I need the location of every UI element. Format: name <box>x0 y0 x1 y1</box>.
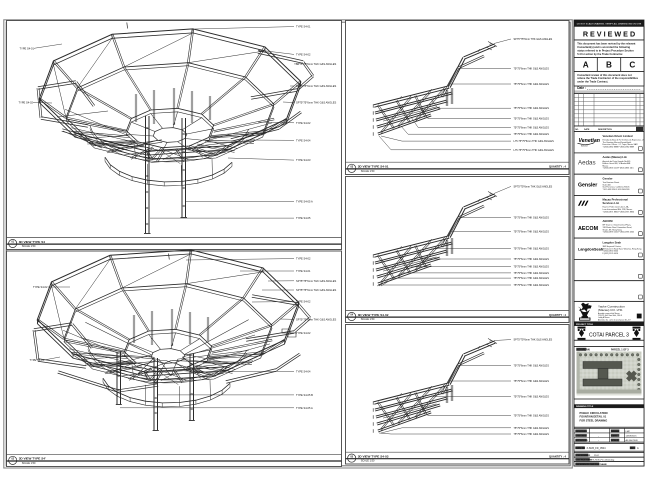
svg-text:Alameda. dra. carlos d assumpc: Alameda. dra. carlos d assumpcao 411-417 <box>598 318 631 321</box>
svg-text:75*75*6mm THK G&S ANGLES: 75*75*6mm THK G&S ANGLES <box>514 266 550 269</box>
svg-text:This document has been revised: This document has been revised by the re… <box>577 42 635 46</box>
svg-text:(Macau) CO. LTD.: (Macau) CO. LTD. <box>598 308 623 312</box>
svg-text:3-SUB_FD_0504.dwg: 3-SUB_FD_0504.dwg <box>593 460 615 462</box>
svg-text:Gensler: Gensler <box>578 183 597 189</box>
svg-text:DATE: DATE <box>611 434 617 437</box>
svg-text:75*75*6mm THK G&S ANGLES: 75*75*6mm THK G&S ANGLES <box>514 396 550 399</box>
svg-text:75*75*6mm THK G&S ANGLES: 75*75*6mm THK G&S ANGLES <box>514 230 550 233</box>
svg-text:SP75*75*6mm THK G&S ANGLES: SP75*75*6mm THK G&S ANGLES <box>296 317 336 321</box>
svg-text:B: B <box>606 61 612 70</box>
svg-text:3D VIEW TYPE S4-01: 3D VIEW TYPE S4-01 <box>358 165 389 169</box>
svg-text:A: A <box>583 61 589 70</box>
svg-text:3D VIEW TYPE S4-03: 3D VIEW TYPE S4-03 <box>358 454 389 458</box>
svg-text:75*75*6mm THK G&S ANGLES: 75*75*6mm THK G&S ANGLES <box>514 118 550 121</box>
svg-text:SP75*75*6mm THK G&S ANGLES: SP75*75*6mm THK G&S ANGLES <box>296 279 336 283</box>
svg-text:SCALE 1:50: SCALE 1:50 <box>22 462 36 465</box>
svg-text:TYPE S4-01: TYPE S4-01 <box>296 25 311 29</box>
svg-text:SP75*75*6mm THK G&S ANGLES: SP75*75*6mm THK G&S ANGLES <box>296 288 336 292</box>
svg-text:75*75*6mm THK G&S ANGLES: 75*75*6mm THK G&S ANGLES <box>514 284 550 287</box>
svg-text:TYPE S4-05 B: TYPE S4-05 B <box>296 393 313 397</box>
svg-text:Venetian Orient Limited: Venetian Orient Limited <box>603 134 633 138</box>
svg-text:Consultant review of this docu: Consultant review of this document does … <box>577 73 632 77</box>
svg-text:TYPE S4-05 A: TYPE S4-05 A <box>296 406 313 410</box>
svg-text:LangdonSeah: LangdonSeah <box>578 248 604 252</box>
svg-text:PUBLIC CIRCULATION: PUBLIC CIRCULATION <box>580 411 608 415</box>
svg-text:REFERENCE CAD FILE NAME: REFERENCE CAD FILE NAME <box>576 463 608 466</box>
svg-text:Services Ltd.: Services Ltd. <box>603 201 620 205</box>
svg-text:SCALE 1:50: SCALE 1:50 <box>22 245 36 248</box>
svg-text:2102: 2102 <box>594 455 600 457</box>
svg-text:NO.: NO. <box>575 129 579 131</box>
svg-text:DO NOT SCALE DRAWING. VERIFY A: DO NOT SCALE DRAWING. VERIFY ALL DIMENSI… <box>577 23 642 26</box>
svg-text:Langdon Seah: Langdon Seah <box>603 240 622 244</box>
svg-text:COTAI PARCEL 3: COTAI PARCEL 3 <box>589 332 629 338</box>
svg-text:TYPE S4-01: TYPE S4-01 <box>20 46 35 50</box>
svg-text:TYPE S4-02: TYPE S4-02 <box>296 53 311 57</box>
svg-text:T (853) 2871 8831 F (853) 287: T (853) 2871 8831 F (853) 2871 8830 <box>603 211 635 213</box>
svg-text:R E V I E W E D: R E V I E W E D <box>583 30 635 39</box>
svg-text:TYPE S4-01: TYPE S4-01 <box>30 358 45 362</box>
svg-text:3D VIEW TYPE S4-02: 3D VIEW TYPE S4-02 <box>358 313 389 317</box>
svg-text:Date :: Date : <box>577 86 586 90</box>
svg-text:3D VIEW TYPE S4: 3D VIEW TYPE S4 <box>19 240 46 244</box>
svg-text:T 415.433.3700 F 415.836.4599: T 415.433.3700 F 415.836.4599 <box>603 189 630 191</box>
svg-text:TYPE S4-02: TYPE S4-02 <box>296 121 311 125</box>
svg-text:FOR STEEL DRAWING: FOR STEEL DRAWING <box>580 418 608 422</box>
svg-text:TYPE S4-05 A: TYPE S4-05 A <box>296 200 313 204</box>
svg-text:QUANTITY : 4: QUANTITY : 4 <box>549 454 567 458</box>
svg-text:QUANTITY : 4: QUANTITY : 4 <box>549 313 567 317</box>
svg-text:DWG NO: DWG NO <box>576 448 586 450</box>
svg-text:SP75*75*6mm THK G&S ANGLES: SP75*75*6mm THK G&S ANGLES <box>514 38 553 41</box>
svg-text:14/08/2015: 14/08/2015 <box>626 435 638 437</box>
svg-text:75*75*6mm THK G&S ANGLES: 75*75*6mm THK G&S ANGLES <box>514 258 550 261</box>
svg-text:SCALE 1:50: SCALE 1:50 <box>361 170 375 173</box>
svg-text:QUANTITY : 4: QUANTITY : 4 <box>549 165 567 169</box>
svg-text:AECOM: AECOM <box>578 226 599 232</box>
svg-text:under the Trade Contract.: under the Trade Contract. <box>577 80 608 84</box>
svg-text:Gensler: Gensler <box>603 176 613 180</box>
svg-text:3D VIEW TYPE S4': 3D VIEW TYPE S4' <box>19 457 46 461</box>
svg-text:75*75*6mm THK G&S ANGLES: 75*75*6mm THK G&S ANGLES <box>514 126 550 129</box>
svg-text:PARCEL 1 OF 3: PARCEL 1 OF 3 <box>611 349 629 352</box>
svg-text:TYPE S4-02: TYPE S4-02 <box>296 331 311 335</box>
svg-text:SP75*75*6mm THK G&S ANGLES: SP75*75*6mm THK G&S ANGLES <box>514 185 553 188</box>
svg-text:75*75*6mm THK G&S ANGLES: 75*75*6mm THK G&S ANGLES <box>514 67 550 70</box>
svg-text:SP75*75*6mm THK G&S ANGLES: SP75*75*6mm THK G&S ANGLES <box>296 62 336 66</box>
svg-text:Consultant(s) and is accorded: Consultant(s) and is accorded the follow… <box>577 45 630 49</box>
svg-text:L75 75*75*6mm THK G&S ANGLES: L75 75*75*6mm THK G&S ANGLES <box>514 149 555 152</box>
svg-text:L75 75*75*6mm THK G&S ANGLES: L75 75*75*6mm THK G&S ANGLES <box>514 140 555 143</box>
svg-text:75*75*6mm THK G&S ANGLES: 75*75*6mm THK G&S ANGLES <box>514 272 550 275</box>
svg-text:75*75*6mm THK G&S ANGLES: 75*75*6mm THK G&S ANGLES <box>514 107 550 110</box>
svg-text:TYPE S4-02: TYPE S4-02 <box>296 300 311 304</box>
svg-text:FOUNTAIN DETAIL 01: FOUNTAIN DETAIL 01 <box>580 415 607 419</box>
svg-text:JOB NUMBER: JOB NUMBER <box>576 455 591 457</box>
svg-text:75*75*6mm THK G&S ANGLES: 75*75*6mm THK G&S ANGLES <box>514 415 550 418</box>
svg-text:AECOM: AECOM <box>603 219 614 223</box>
svg-text:DESIGNED: DESIGNED <box>576 431 588 433</box>
svg-text:T (852) 2893 1551 F (852) 289: T (852) 2893 1551 F (852) 2891 0305 <box>603 232 635 234</box>
svg-text:CHECKED: CHECKED <box>576 435 587 437</box>
svg-text:DESCRIPTION: DESCRIPTION <box>598 129 612 131</box>
svg-text:TYPE S4-05: TYPE S4-05 <box>296 216 311 220</box>
svg-text:TYPE S4-01: TYPE S4-01 <box>296 269 311 273</box>
svg-text:75*75*6mm THK G&S ANGLES: 75*75*6mm THK G&S ANGLES <box>514 380 550 383</box>
svg-text:5.4 for action by the Trade Co: 5.4 for action by the Trade Contractor. <box>577 52 623 56</box>
svg-text:TYPE S4-02: TYPE S4-02 <box>296 257 311 261</box>
svg-text:75*75*6mm THK G&S ANGLES: 75*75*6mm THK G&S ANGLES <box>514 248 550 251</box>
svg-text:F (852) 2576 0416: F (852) 2576 0416 <box>603 253 619 255</box>
svg-text:SCALE 1:50: SCALE 1:50 <box>361 318 375 321</box>
svg-text:LMC: LMC <box>626 431 631 433</box>
svg-text:DRAWN: DRAWN <box>611 430 620 433</box>
svg-text:AS SHOWN: AS SHOWN <box>626 439 638 442</box>
svg-text:APPROVED: APPROVED <box>576 439 589 442</box>
svg-text:TYPE S4-02: TYPE S4-02 <box>33 285 48 289</box>
svg-text:75*75*6mm THK G&S ANGLES: 75*75*6mm THK G&S ANGLES <box>514 217 550 220</box>
svg-text:3-SUB_FD_0504: 3-SUB_FD_0504 <box>587 447 607 450</box>
svg-text:SCALE: SCALE <box>611 439 619 442</box>
svg-text:REV: REV <box>630 448 635 450</box>
svg-text:T (853) 2833 1113 F (853) 283: T (853) 2833 1113 F (853) 2833 1115 <box>603 168 634 170</box>
svg-text:75*75*6mm THK G&S ANGLES: 75*75*6mm THK G&S ANGLES <box>514 427 550 430</box>
svg-text:CAD FILE NAME: CAD FILE NAME <box>576 459 594 462</box>
svg-text:C: C <box>629 61 635 70</box>
svg-text:SCALE 1:50: SCALE 1:50 <box>361 460 375 463</box>
svg-text:75*75*6mm THK G&S ANGLES: 75*75*6mm THK G&S ANGLES <box>514 277 550 280</box>
svg-text:Venetian: Venetian <box>579 138 600 144</box>
svg-text:75*75*6mm THK G&S ANGLES: 75*75*6mm THK G&S ANGLES <box>514 133 550 136</box>
svg-text:SP75*75*6mm THK G&S ANGLES: SP75*75*6mm THK G&S ANGLES <box>514 339 553 342</box>
svg-text:KEY PLAN: KEY PLAN <box>577 348 590 352</box>
svg-text:75*75*6mm THK G&S ANGLES: 75*75*6mm THK G&S ANGLES <box>514 365 550 368</box>
svg-text:status referred to in Project: status referred to in Project Procedure … <box>577 48 634 52</box>
svg-text:TYPE S4-04: TYPE S4-04 <box>296 138 311 142</box>
svg-text:TYPE S4-04: TYPE S4-04 <box>296 370 311 374</box>
svg-text:75*75*6mm THK G&S ANGLES: 75*75*6mm THK G&S ANGLES <box>514 433 550 436</box>
svg-text:Aedas (Macau) Ltd.: Aedas (Macau) Ltd. <box>603 155 628 159</box>
svg-text:Aedas: Aedas <box>578 160 596 167</box>
svg-text:DATE: DATE <box>584 128 590 131</box>
svg-text:SP75*75*6mm THK G&S ANGLES: SP75*75*6mm THK G&S ANGLES <box>296 84 336 88</box>
svg-text:75*75*6mm THK G&S ANGLES: 75*75*6mm THK G&S ANGLES <box>514 83 550 86</box>
svg-text:TYPE S4-03: TYPE S4-03 <box>296 158 311 162</box>
svg-text:SP75*75*6mm THK G&S ANGLES: SP75*75*6mm THK G&S ANGLES <box>296 101 336 105</box>
svg-text:T (853) 2882 8888 F (853) 28: T (853) 2882 8888 F (853) 2882 8889 <box>603 146 635 148</box>
svg-text:relieve the Trade Contractor o: relieve the Trade Contractor of the resp… <box>577 76 638 80</box>
svg-text:TYPE S4-02: TYPE S4-02 <box>19 101 34 105</box>
